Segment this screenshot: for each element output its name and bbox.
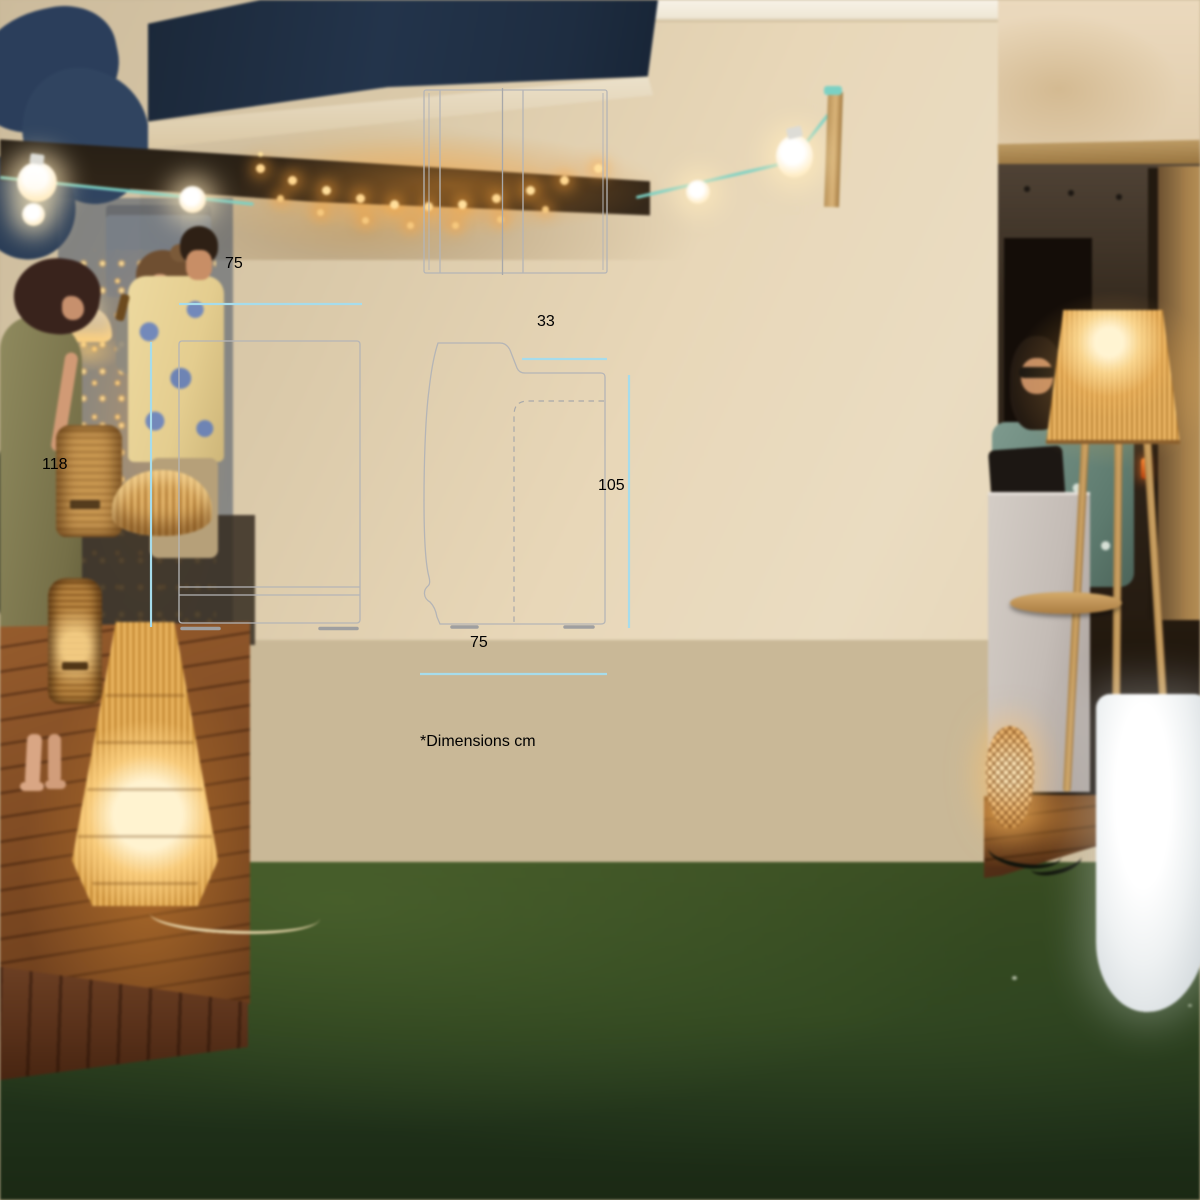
dim-label-front-width: 75	[225, 255, 315, 273]
dimensions-unit-footnote: *Dimensions cm	[420, 733, 740, 751]
grass-speck	[1188, 1004, 1192, 1007]
ceiling-soffit-right	[998, 0, 1200, 148]
top-view-drawing	[424, 88, 607, 275]
floor-lamp-shade	[1046, 310, 1180, 444]
floor-lamp-shelf	[1010, 592, 1122, 614]
dim-label-side-depth: 75	[470, 634, 560, 652]
dimension-lines	[151, 304, 629, 674]
dimension-drawing	[0, 0, 794, 792]
grass-speck	[1012, 976, 1017, 980]
recessed-lights	[1024, 186, 1030, 192]
light-pole-tip	[824, 86, 842, 95]
dim-label-side-height: 105	[598, 477, 728, 519]
floor-lamp-shade-rim	[1046, 440, 1180, 444]
side-view-drawing	[424, 343, 605, 627]
wicker-lantern	[986, 726, 1034, 828]
dim-label-side-top-depth: 33	[537, 313, 627, 331]
ice-bucket-bowl	[1100, 690, 1200, 740]
front-view-drawing	[179, 341, 360, 629]
glowing-ice-bucket	[1096, 694, 1200, 1012]
product-dimensions-image: 75 118 33 105 75 *Dimensions cm	[0, 0, 1200, 1200]
dim-label-front-height: 118	[42, 456, 172, 498]
